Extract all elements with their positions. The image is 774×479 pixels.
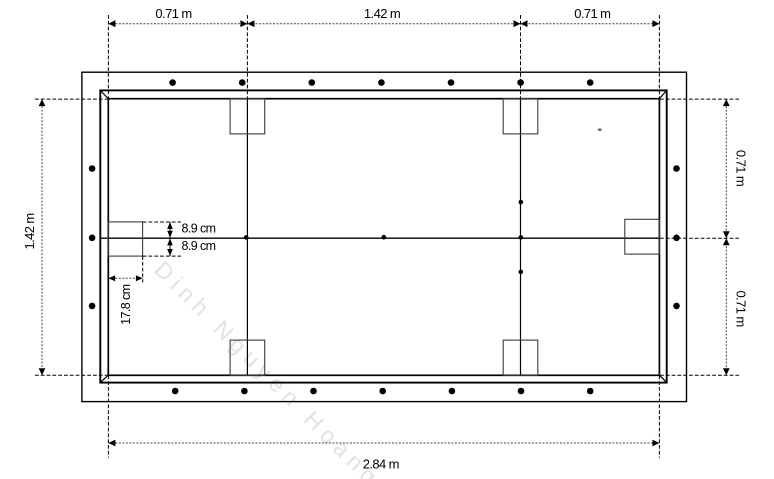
svg-text:0.71 m: 0.71 m — [574, 6, 610, 21]
svg-text:8.9 cm: 8.9 cm — [182, 239, 216, 253]
svg-text:0.71 m: 0.71 m — [734, 150, 749, 186]
svg-text:0.71 m: 0.71 m — [734, 291, 749, 327]
svg-text:1.42 m: 1.42 m — [364, 6, 400, 21]
svg-text:8.9 cm: 8.9 cm — [182, 222, 216, 236]
svg-text:2.84 m: 2.84 m — [363, 457, 399, 472]
svg-text:0.71 m: 0.71 m — [155, 6, 191, 21]
svg-text:17.8 cm: 17.8 cm — [119, 284, 133, 324]
svg-text:1.42 m: 1.42 m — [22, 213, 37, 249]
